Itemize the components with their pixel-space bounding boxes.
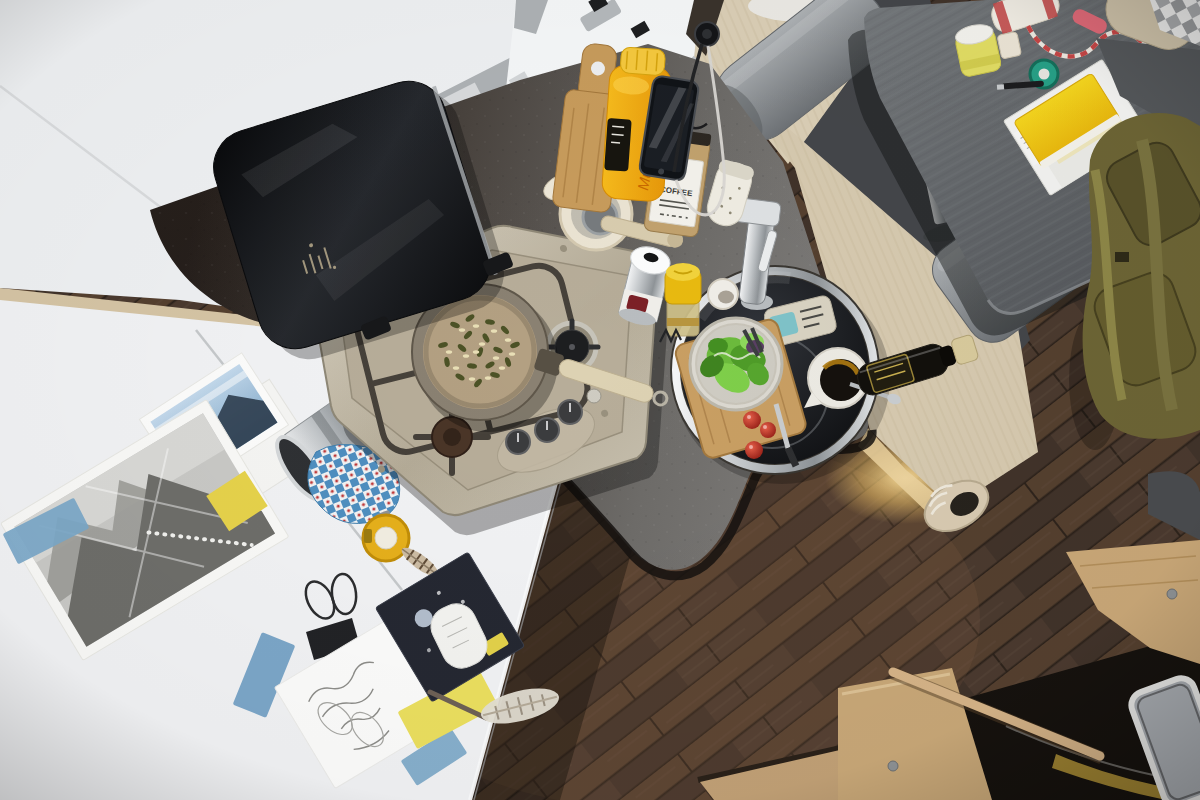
camper-kitchen-photo: COFFEE Muesli (0, 0, 1200, 800)
vignette (0, 0, 1200, 800)
photo-canvas: COFFEE Muesli (0, 0, 1200, 800)
